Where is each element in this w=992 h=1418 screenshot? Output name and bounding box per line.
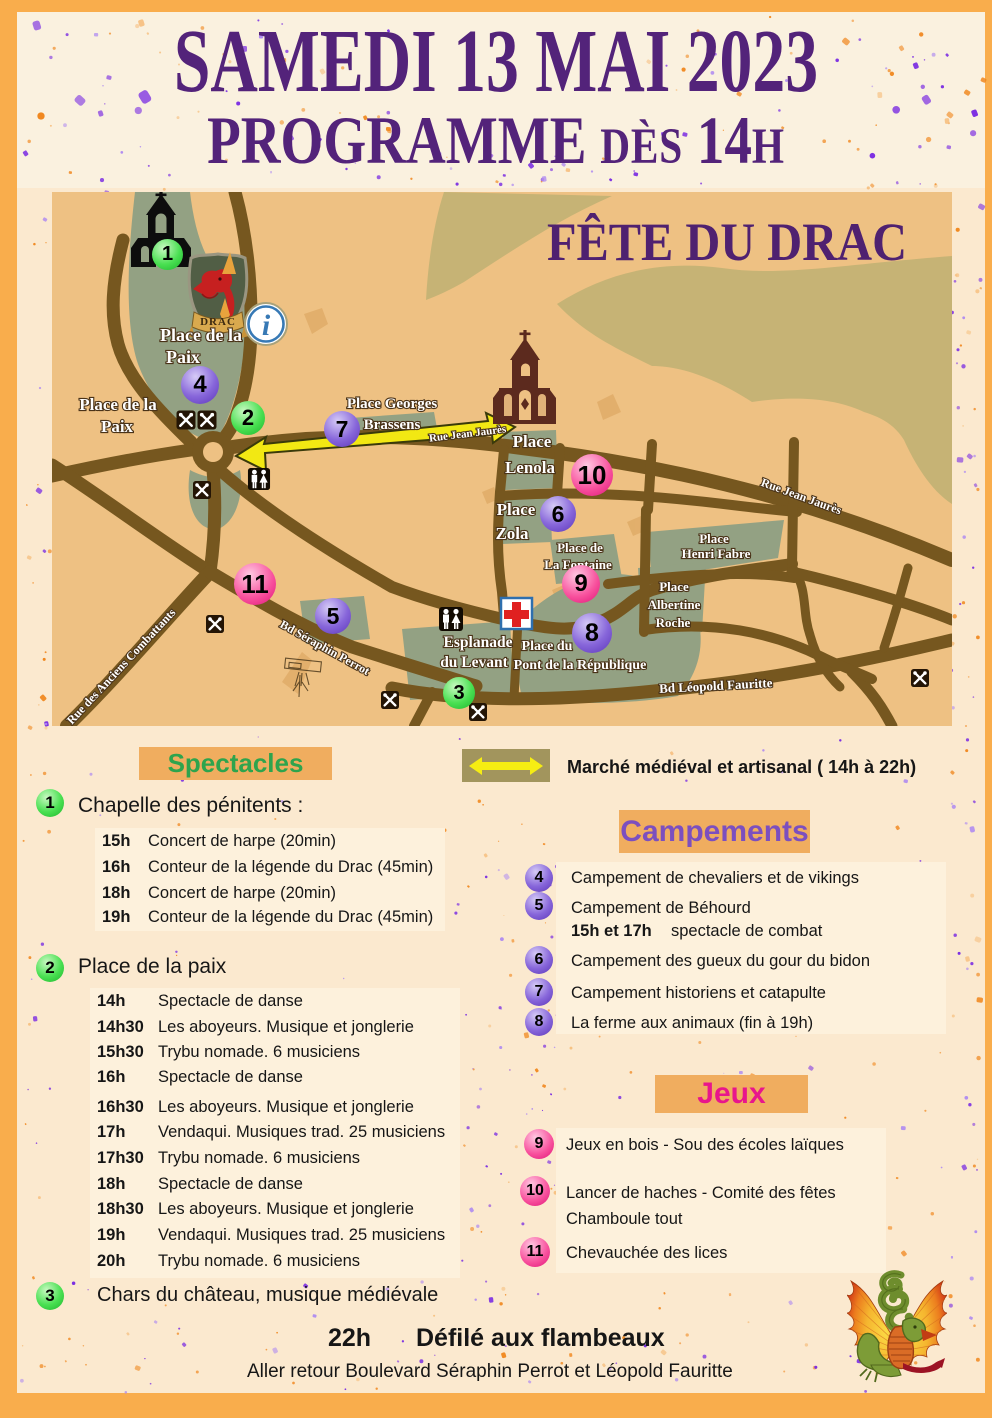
svg-text:Zola: Zola: [495, 524, 529, 543]
svg-text:i: i: [262, 309, 271, 342]
svg-text:FÊTE DU DRAC: FÊTE DU DRAC: [547, 212, 907, 272]
svg-text:Paix: Paix: [166, 347, 200, 367]
svg-text:Place: Place: [513, 432, 552, 451]
svg-text:Paix: Paix: [101, 417, 134, 436]
svg-text:Place: Place: [497, 500, 536, 519]
svg-text:Place Georges: Place Georges: [347, 396, 438, 412]
svg-text:Brassens: Brassens: [364, 417, 421, 433]
svg-text:Albertine: Albertine: [648, 597, 701, 612]
svg-text:Place de la: Place de la: [79, 395, 157, 414]
svg-text:Esplanade: Esplanade: [444, 634, 513, 651]
svg-text:Place du: Place du: [522, 639, 573, 654]
svg-text:Place: Place: [699, 531, 729, 546]
svg-text:Place de la: Place de la: [160, 325, 242, 345]
svg-text:Henri Fabre: Henri Fabre: [682, 546, 751, 561]
svg-text:du Levant: du Levant: [440, 654, 508, 671]
svg-text:Place: Place: [659, 579, 689, 594]
svg-text:Pont de la République: Pont de la République: [514, 658, 647, 673]
svg-text:Roche: Roche: [656, 615, 691, 630]
svg-text:Lenola: Lenola: [505, 458, 556, 477]
svg-text:Place de: Place de: [557, 540, 603, 555]
